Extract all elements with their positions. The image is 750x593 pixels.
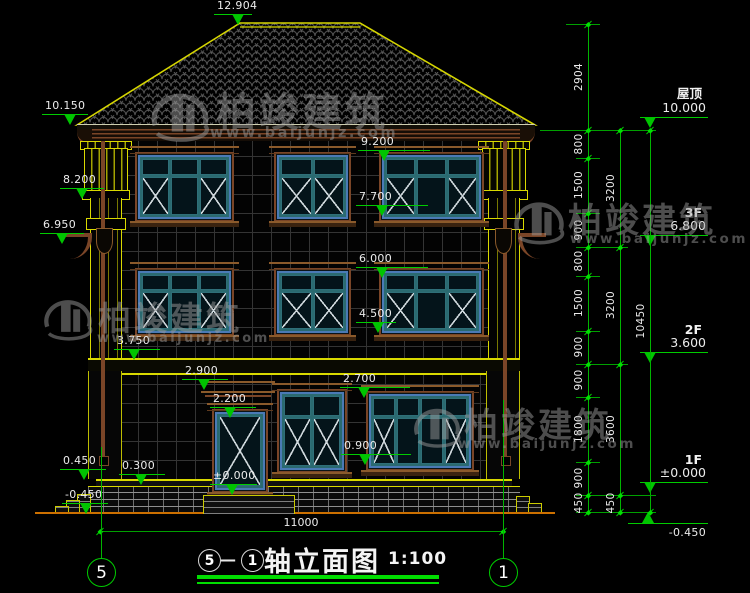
elevation-value: 7.700 <box>359 190 392 203</box>
dim-value: 900 <box>573 370 585 391</box>
level-triangle-icon <box>644 117 656 128</box>
dim-line-col2 <box>620 130 621 512</box>
level-triangle-icon <box>56 233 68 244</box>
brick-plinth <box>88 486 520 514</box>
elevation-value: 2.200 <box>213 392 246 405</box>
window-pane <box>373 398 395 416</box>
window-pane <box>448 159 477 175</box>
dim-line-col3 <box>650 130 651 512</box>
window-pane <box>142 292 169 329</box>
axis-number: 1 <box>248 553 258 569</box>
window-pane <box>417 177 446 215</box>
axis-number: 1 <box>498 563 509 583</box>
title-axis-circle-end: 1 <box>241 549 264 572</box>
window-pane <box>448 292 477 329</box>
dim-tick-line <box>566 24 600 25</box>
level-triangle-icon <box>358 387 370 398</box>
window-pane <box>314 159 345 175</box>
window-3f-right <box>379 152 484 222</box>
elevation-value: 0.900 <box>344 439 377 452</box>
right-pendant-ornament <box>495 228 512 254</box>
window-pane <box>397 398 419 416</box>
window-frame <box>277 155 348 219</box>
elevation-value: 2.900 <box>185 364 218 377</box>
window-pane <box>281 292 312 329</box>
string-course-band <box>88 358 520 375</box>
window-frame <box>382 155 481 219</box>
drawing-scale: 1:100 <box>388 549 447 569</box>
title-underline <box>197 582 439 584</box>
window-frame <box>138 155 231 219</box>
window-pane <box>421 418 443 464</box>
dim-value: 1500 <box>573 289 585 317</box>
level-triangle-icon <box>64 114 76 125</box>
window-pane <box>421 398 443 416</box>
window-pane <box>171 177 198 215</box>
window-pane <box>313 418 340 466</box>
elevation-value: 4.500 <box>359 307 392 320</box>
window-pane <box>448 177 477 215</box>
window-2f-left <box>135 268 234 336</box>
window-frame <box>369 394 471 468</box>
window-pane <box>417 275 446 290</box>
level-triangle-icon <box>359 454 371 465</box>
elevation-drawing: 12.904 10.150 8.200 6.950 9.200 7.700 6.… <box>0 0 750 593</box>
elevation-value: 12.904 <box>217 0 257 12</box>
window-pane <box>386 159 415 175</box>
dim-value: 450 <box>605 493 617 514</box>
bottom-dim-line <box>100 531 503 532</box>
title-axis-circle-start: 5 <box>198 549 221 572</box>
elevation-value: ±0.000 <box>213 469 256 482</box>
dim-value: 2904 <box>573 63 585 91</box>
floor-elevation: ±0.000 <box>660 465 706 480</box>
level-triangle-icon <box>376 267 388 278</box>
dim-value: 11000 <box>284 516 319 529</box>
level-triangle-icon <box>78 469 90 480</box>
elevation-value: -0.450 <box>65 488 102 501</box>
window-pane <box>171 275 198 290</box>
elevation-value: 0.300 <box>122 459 155 472</box>
dim-value: 10450 <box>635 304 647 339</box>
window-pane <box>397 418 419 464</box>
window-pane <box>171 292 198 329</box>
floor-elevation: 3.600 <box>670 335 706 350</box>
dim-line-col1 <box>588 24 589 512</box>
window-pane <box>314 292 345 329</box>
dim-value: 900 <box>573 220 585 241</box>
window-pane <box>171 159 198 175</box>
window-pane <box>417 292 446 329</box>
dim-tick-line <box>540 130 656 131</box>
elevation-value: 6.950 <box>43 218 76 231</box>
dim-value: 450 <box>573 493 585 514</box>
level-triangle-icon <box>378 150 390 161</box>
level-triangle-icon <box>76 188 88 199</box>
window-frame <box>382 271 481 333</box>
left-pendant-ornament <box>96 228 113 254</box>
level-triangle-icon <box>376 205 388 216</box>
window-pane <box>142 159 169 175</box>
level-triangle-icon <box>135 474 147 485</box>
elevation-value: 9.200 <box>361 135 394 148</box>
elevation-value: 2.700 <box>343 372 376 385</box>
window-pane <box>200 275 227 290</box>
window-pane <box>417 159 446 175</box>
dim-value: 3600 <box>605 415 617 443</box>
window-pane <box>445 418 467 464</box>
dim-value: 3200 <box>605 174 617 202</box>
window-pane <box>445 398 467 416</box>
elevation-value: 3.750 <box>117 334 150 347</box>
window-2f-right <box>379 268 484 336</box>
window-pane <box>142 275 169 290</box>
dim-value: 1500 <box>573 171 585 199</box>
level-triangle-icon <box>226 484 238 495</box>
floor-elevation: 6.800 <box>670 218 706 233</box>
dim-value: 3200 <box>605 291 617 319</box>
elevation-value: 8.200 <box>63 173 96 186</box>
axis-line-5 <box>101 447 102 558</box>
window-frame <box>138 271 231 333</box>
title-dash: — <box>220 550 236 569</box>
window-pane <box>200 159 227 175</box>
level-triangle-icon <box>198 379 210 390</box>
window-pane <box>200 177 227 215</box>
window-pane <box>313 396 340 416</box>
window-3f-center <box>274 152 351 222</box>
ground-line <box>35 512 555 514</box>
window-3f-left <box>135 152 234 222</box>
elevation-value: 0.450 <box>63 454 96 467</box>
window-pane <box>314 177 345 215</box>
window-pane <box>284 396 311 416</box>
drawing-title: 轴立面图 <box>264 540 380 579</box>
axis-number: 5 <box>205 553 215 569</box>
level-triangle-icon <box>224 407 236 418</box>
window-pane <box>142 177 169 215</box>
window-1f-left <box>277 389 347 473</box>
window-pane <box>281 159 312 175</box>
window-pane <box>448 275 477 290</box>
window-pane <box>386 275 415 290</box>
dim-value: 900 <box>573 468 585 489</box>
window-pane <box>314 275 345 290</box>
level-triangle-icon <box>80 503 92 514</box>
dim-value: 800 <box>573 134 585 155</box>
axis-bubble-1: 1 <box>489 558 518 587</box>
window-frame <box>277 271 348 333</box>
window-pane <box>281 177 312 215</box>
level-triangle-icon <box>372 322 384 333</box>
floor-elevation: -0.450 <box>669 526 706 539</box>
floor-elevation: 10.000 <box>662 100 706 115</box>
level-triangle-icon <box>128 349 140 360</box>
window-pane <box>284 418 311 466</box>
door-step-platform <box>203 495 295 514</box>
window-pane <box>200 292 227 329</box>
window-pane <box>281 275 312 290</box>
window-2f-center <box>274 268 351 336</box>
axis-bubble-5: 5 <box>87 558 116 587</box>
elevation-value: 10.150 <box>45 99 85 112</box>
dim-value: 1800 <box>573 415 585 443</box>
level-triangle-icon <box>232 14 244 25</box>
axis-line-1 <box>503 400 504 558</box>
window-1f-right <box>366 391 474 471</box>
axis-number: 5 <box>96 563 107 583</box>
roof-outline <box>77 23 535 125</box>
elevation-value: 6.000 <box>359 252 392 265</box>
dim-value: 800 <box>573 251 585 272</box>
dim-value: 900 <box>573 337 585 358</box>
title-underline <box>197 575 439 579</box>
window-frame <box>280 392 344 470</box>
